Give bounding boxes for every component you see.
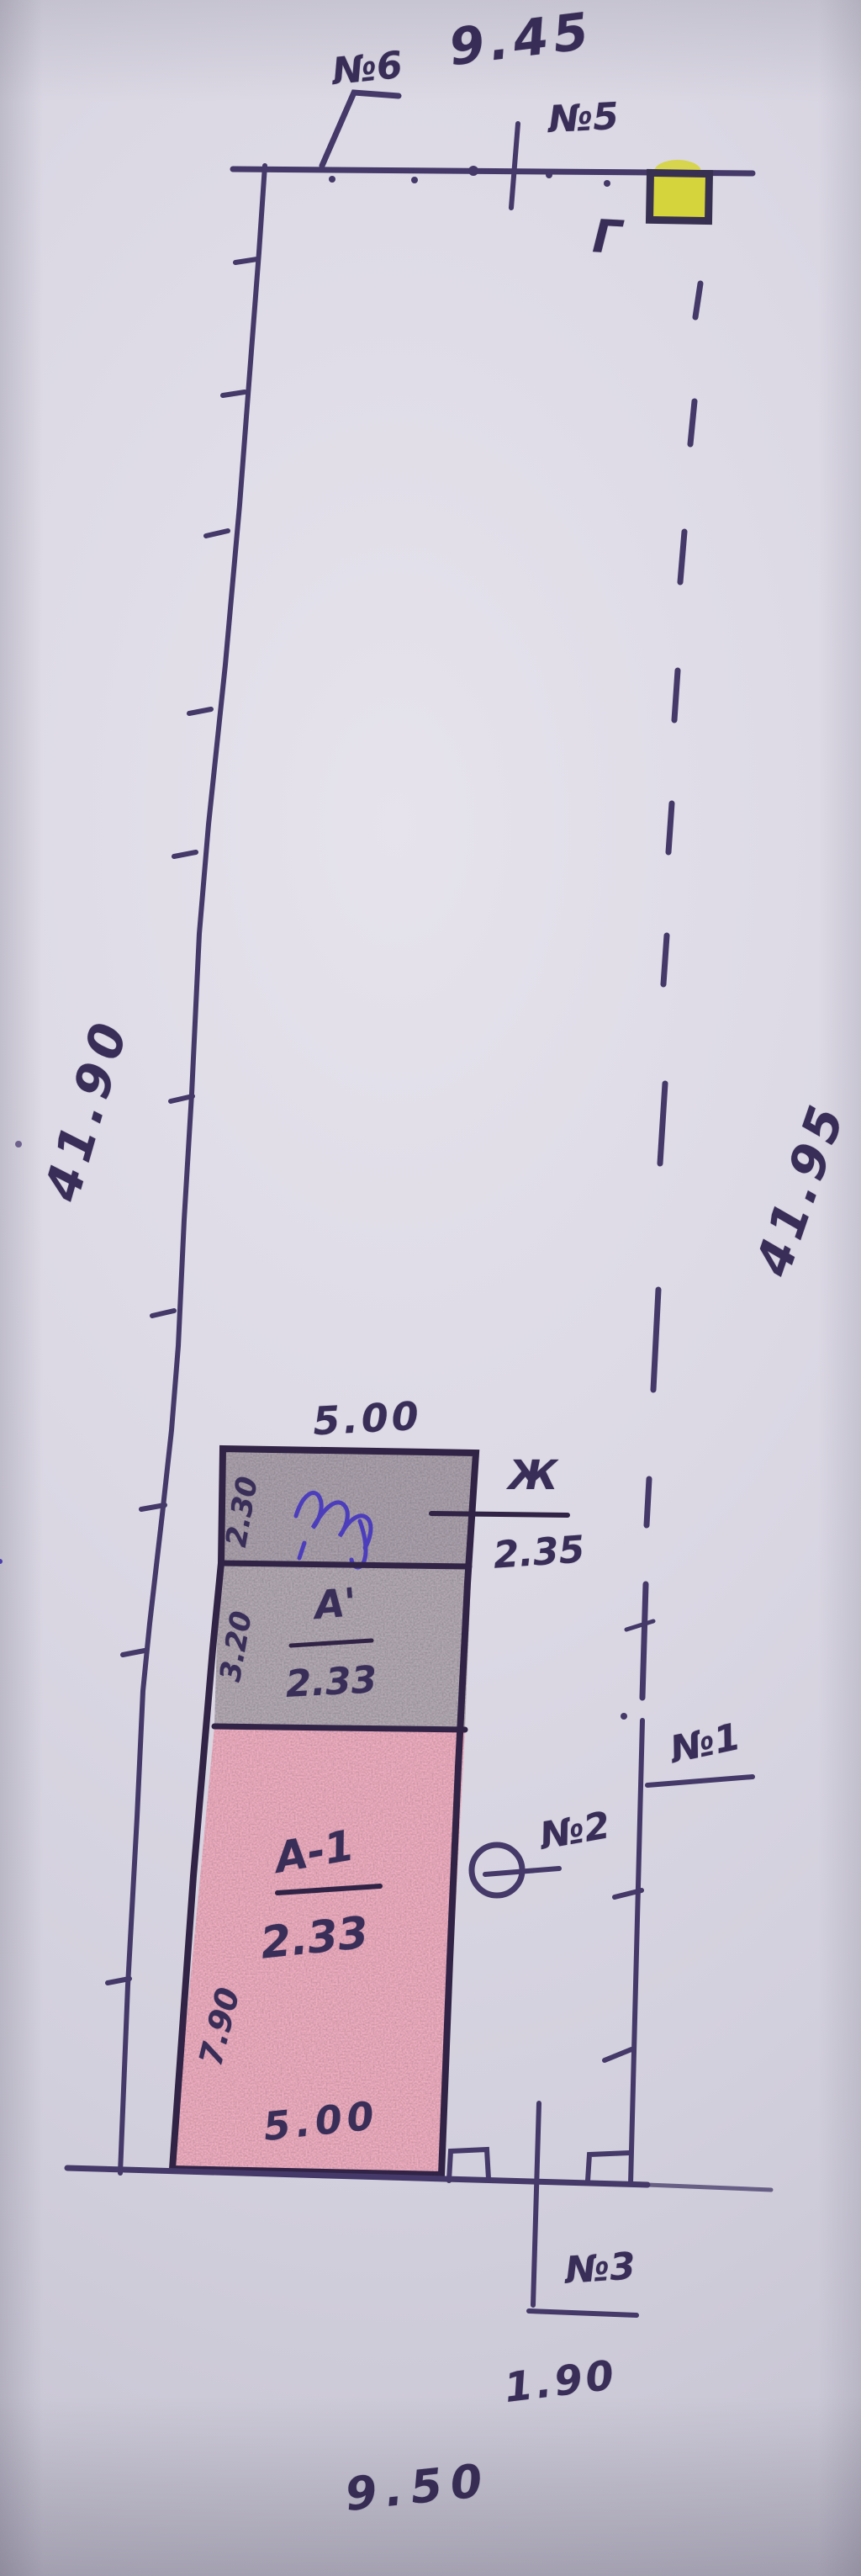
section-a-prime-letter: А' bbox=[313, 1582, 358, 1625]
ink-speck bbox=[15, 1141, 22, 1148]
section-zh-value: 2.35 bbox=[492, 1531, 585, 1574]
point-2-bar bbox=[485, 1868, 559, 1874]
point-3-underline bbox=[529, 2311, 637, 2315]
yellow-outbuilding-square bbox=[650, 172, 710, 220]
plan-drawing bbox=[0, 0, 861, 2576]
right-boundary-dot bbox=[621, 1713, 627, 1720]
bottom-boundary-line-faint bbox=[647, 2185, 771, 2190]
right-boundary-solid-line bbox=[631, 1720, 642, 2184]
building-divider-upper bbox=[221, 1563, 469, 1566]
point-5-label: №5 bbox=[547, 98, 620, 139]
outbuilding-letter-label: Г bbox=[591, 214, 622, 261]
photo-of-plan: 9.45 №6 №5 Г 41.90 41.95 5.00 Ж 2.35 2.3… bbox=[0, 0, 861, 2576]
zh-leader-line bbox=[431, 1513, 568, 1515]
right-boundary-tick-lower bbox=[605, 2049, 631, 2060]
point-5-tick bbox=[511, 124, 518, 208]
point-6-flag bbox=[322, 93, 399, 166]
porch-bracket-left bbox=[449, 2149, 489, 2181]
right-boundary-dashed-line bbox=[642, 284, 700, 1698]
point-3-vertical-line bbox=[533, 2103, 539, 2305]
porch-bracket-right bbox=[588, 2153, 630, 2181]
building-divider-lower bbox=[214, 1726, 465, 1730]
section-a-prime-value: 2.33 bbox=[285, 1662, 378, 1704]
section-a1-value: 2.33 bbox=[258, 1911, 370, 1965]
section-zh-letter: Ж bbox=[509, 1455, 558, 1496]
point-3-label: №3 bbox=[564, 2248, 637, 2290]
point-6-label: №6 bbox=[330, 47, 404, 91]
point-1-underline bbox=[647, 1777, 753, 1785]
right-boundary-tick-upper bbox=[626, 1621, 653, 1630]
dim-building-width-bottom: 5.00 bbox=[261, 2096, 381, 2146]
dim-building-width-top: 5.00 bbox=[312, 1397, 423, 1441]
section-a1-letter: А-1 bbox=[272, 1824, 357, 1879]
